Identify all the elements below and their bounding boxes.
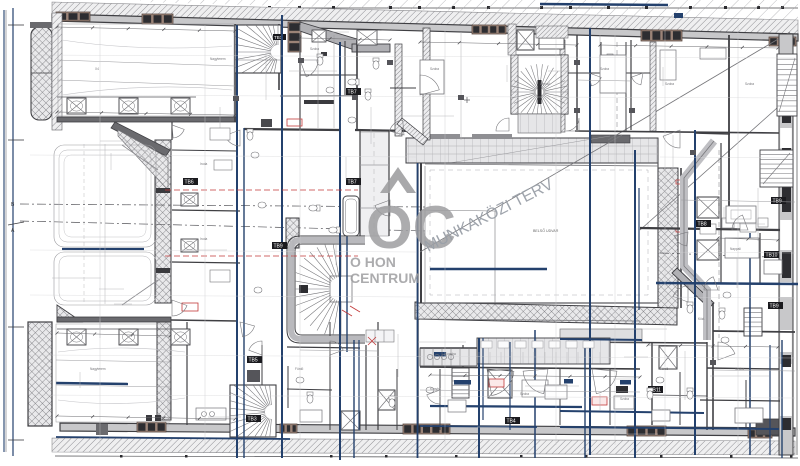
svg-text:Nappali: Nappali (730, 247, 741, 251)
svg-text:Szoba: Szoba (745, 82, 754, 86)
svg-text:Szoba: Szoba (735, 367, 744, 371)
svg-text:TB5: TB5 (249, 358, 258, 364)
svg-text:TB6: TB6 (185, 180, 194, 186)
svg-text:Szoba: Szoba (600, 67, 609, 71)
svg-text:Fürdő: Fürdő (660, 367, 669, 371)
svg-text:Szoba: Szoba (520, 392, 529, 396)
svg-text:Szoba: Szoba (430, 67, 439, 71)
svg-text:TB7: TB7 (348, 90, 357, 96)
svg-text:TB10: TB10 (766, 253, 778, 259)
svg-text:CENTRUM: CENTRUM (350, 270, 420, 286)
svg-text:Közl.: Közl. (698, 317, 705, 321)
svg-text:OC: OC (366, 194, 456, 261)
svg-text:Lépcső: Lépcső (540, 82, 551, 86)
svg-text:O HON: O HON (350, 254, 396, 270)
svg-text:Konyha: Konyha (430, 387, 441, 391)
svg-text:Nagyterem: Nagyterem (90, 367, 106, 371)
svg-text:TB4: TB4 (507, 419, 516, 425)
svg-text:Szoba: Szoba (620, 397, 629, 401)
svg-text:Szoba: Szoba (665, 82, 674, 86)
svg-text:Fürdő: Fürdő (295, 367, 304, 371)
svg-text:Nagyterem: Nagyterem (210, 57, 226, 61)
svg-text:Szoba: Szoba (310, 47, 319, 51)
svg-text:TB8: TB8 (698, 222, 707, 228)
svg-text:BELSŐ UDVAR: BELSŐ UDVAR (533, 228, 559, 233)
svg-text:TB7: TB7 (348, 180, 357, 186)
svg-text:TB9: TB9 (274, 244, 283, 250)
svg-text:Konyha: Konyha (445, 352, 456, 356)
svg-text:TB3: TB3 (248, 417, 257, 423)
svg-text:Iroda: Iroda (200, 237, 207, 241)
svg-text:Iroda: Iroda (200, 162, 207, 166)
svg-text:X4: X4 (95, 67, 99, 71)
svg-text:TB9: TB9 (770, 304, 779, 310)
